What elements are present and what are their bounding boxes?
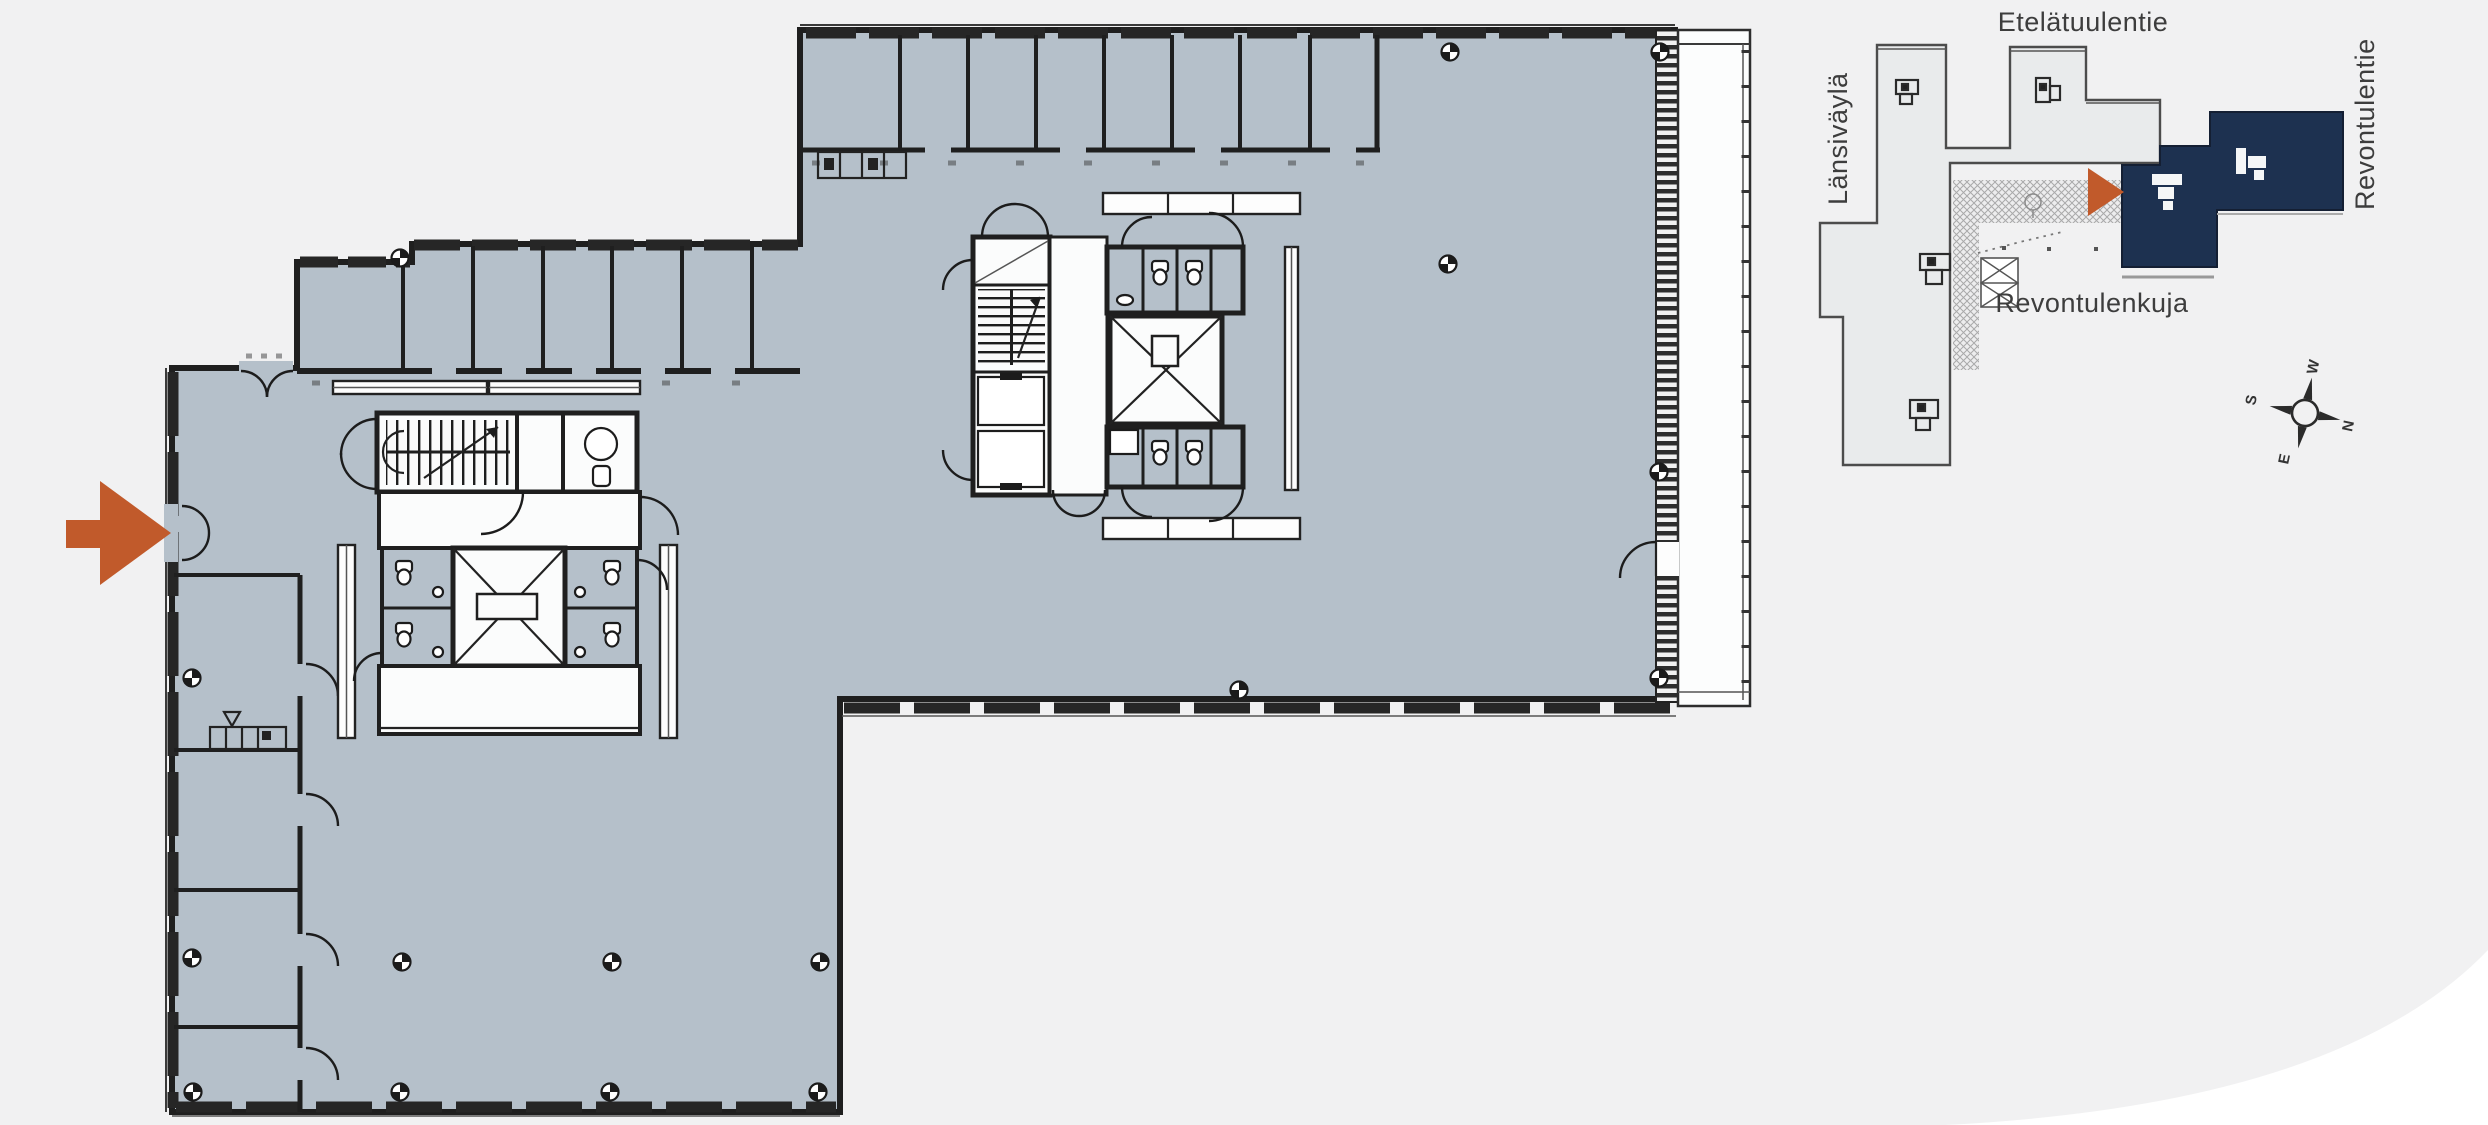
elevators — [978, 373, 1044, 490]
street-label-bottom: Revontulenkuja — [1995, 288, 2189, 318]
shaft-left — [453, 548, 565, 666]
balcony — [1678, 30, 1750, 706]
right-core — [943, 204, 1243, 521]
compass-label-south: S — [2242, 393, 2261, 406]
site-map-buildings — [1820, 45, 2160, 465]
street-label-right: Revontulentie — [2350, 38, 2380, 210]
main-floor-plan — [164, 25, 1750, 1116]
street-label-top: Etelätuulentie — [1998, 7, 2169, 37]
curtain-wall-east — [1656, 30, 1678, 702]
entrance-arrow — [66, 481, 171, 585]
stairs-left — [383, 420, 510, 485]
floorplan-figure: Etelätuulentie Länsiväylä Revontulentie … — [0, 0, 2488, 1125]
compass-rose: W S N E — [2242, 358, 2358, 466]
background-curve — [1945, 950, 2488, 1125]
compass-label-east: E — [2275, 452, 2294, 465]
compass-label-north: N — [2339, 419, 2358, 433]
street-label-left: Länsiväylä — [1823, 72, 1853, 205]
page: Etelätuulentie Länsiväylä Revontulentie … — [0, 0, 2488, 1125]
compass-label-west: W — [2304, 358, 2324, 376]
shaft-right — [1110, 316, 1222, 424]
left-core — [341, 413, 678, 734]
site-map: Etelätuulentie Länsiväylä Revontulentie … — [1820, 7, 2380, 466]
